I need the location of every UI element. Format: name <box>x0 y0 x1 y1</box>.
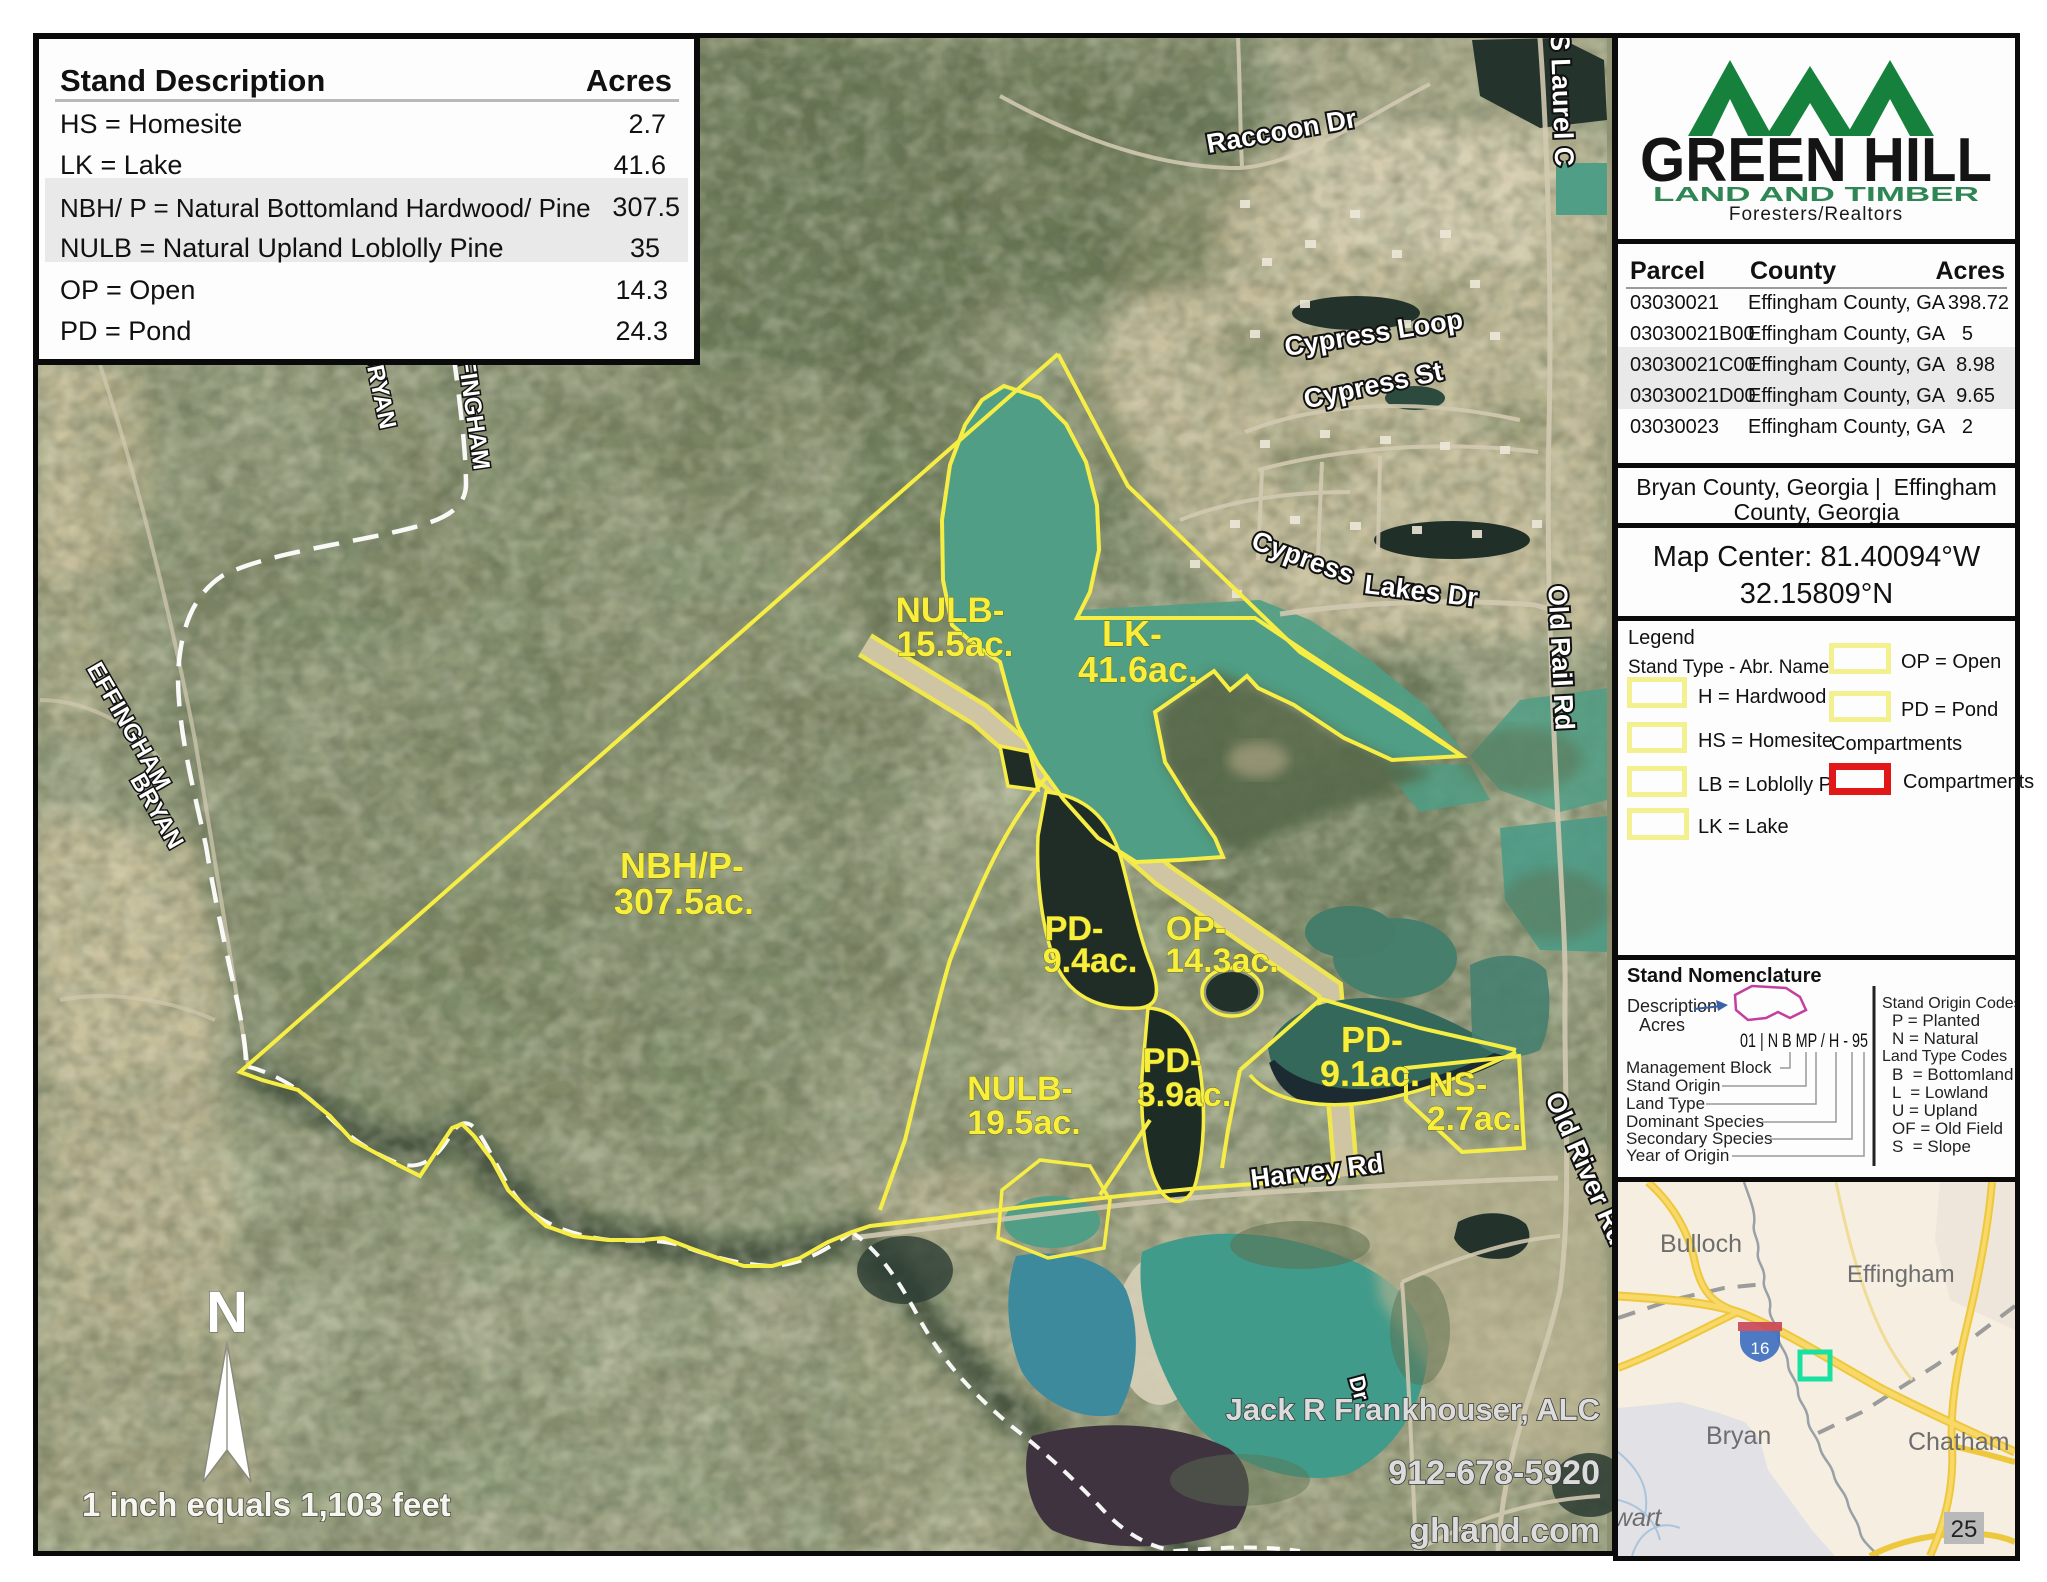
svg-text:OF = Old Field: OF = Old Field <box>1892 1119 2003 1138</box>
svg-text:41.6ac.: 41.6ac. <box>1078 649 1198 690</box>
svg-text:NS-: NS- <box>1429 1066 1488 1104</box>
svg-text:9.4ac.: 9.4ac. <box>1043 942 1138 980</box>
svg-text:1 inch equals 1,103 feet: 1 inch equals 1,103 feet <box>82 1486 451 1523</box>
svg-text:NULB-: NULB- <box>967 1070 1073 1108</box>
svg-text:Land Type: Land Type <box>1626 1094 1705 1113</box>
svg-text:25: 25 <box>1951 1516 1978 1543</box>
svg-text:19.5ac.: 19.5ac. <box>967 1104 1080 1142</box>
svg-text:3.9ac.: 3.9ac. <box>1137 1076 1232 1114</box>
svg-text:Stand Origin Codes: Stand Origin Codes <box>1882 995 2015 1012</box>
svg-text:912-678-5920: 912-678-5920 <box>1388 1454 1600 1492</box>
svg-text:Stand Origin: Stand Origin <box>1626 1076 1721 1095</box>
svg-text:2.7ac.: 2.7ac. <box>1427 1100 1522 1138</box>
svg-text:Land Type Codes: Land Type Codes <box>1882 1048 2007 1065</box>
svg-text:ghland.com: ghland.com <box>1409 1512 1600 1550</box>
svg-text:LAND AND TIMBER: LAND AND TIMBER <box>1653 184 1980 206</box>
svg-text:N: N <box>206 1280 248 1345</box>
svg-text:wart: wart <box>1618 1504 1662 1532</box>
svg-text:01 | N B MP / H - 95: 01 | N B MP / H - 95 <box>1740 1031 1868 1052</box>
svg-text:15.5ac.: 15.5ac. <box>897 625 1014 664</box>
svg-text:Jack R Frankhouser, ALC: Jack R Frankhouser, ALC <box>1226 1392 1600 1427</box>
svg-text:Bryan: Bryan <box>1706 1422 1771 1450</box>
svg-text:Stand Nomenclature: Stand Nomenclature <box>1627 965 1821 987</box>
svg-text:P = Planted: P = Planted <box>1892 1011 1980 1030</box>
svg-text:PD-: PD- <box>1143 1042 1202 1080</box>
svg-text:S Laurel C: S Laurel C <box>1545 38 1580 167</box>
svg-text:16: 16 <box>1751 1339 1770 1358</box>
svg-text:307.5ac.: 307.5ac. <box>614 881 754 922</box>
svg-text:NBH/P-: NBH/P- <box>620 845 744 886</box>
svg-text:Foresters/Realtors: Foresters/Realtors <box>1729 204 1903 225</box>
svg-text:Bulloch: Bulloch <box>1660 1230 1742 1258</box>
svg-text:9.1ac.: 9.1ac. <box>1320 1053 1420 1094</box>
svg-text:B = Bottomland: B = Bottomland <box>1892 1065 2013 1084</box>
svg-text:14.3ac.: 14.3ac. <box>1165 942 1278 980</box>
svg-text:U = Upland: U = Upland <box>1892 1101 1978 1120</box>
svg-text:N = Natural: N = Natural <box>1892 1029 1978 1048</box>
svg-text:Year of Origin: Year of Origin <box>1626 1146 1729 1165</box>
svg-text:Effingham: Effingham <box>1847 1261 1955 1288</box>
svg-text:Description: Description <box>1627 996 1717 1016</box>
svg-text:LK-: LK- <box>1102 613 1162 654</box>
svg-text:Acres: Acres <box>1639 1015 1685 1035</box>
svg-text:Chatham: Chatham <box>1908 1428 2009 1456</box>
svg-text:Management Block: Management Block <box>1626 1058 1772 1077</box>
svg-text:L = Lowland: L = Lowland <box>1892 1083 1988 1102</box>
svg-text:S = Slope: S = Slope <box>1892 1137 1971 1156</box>
